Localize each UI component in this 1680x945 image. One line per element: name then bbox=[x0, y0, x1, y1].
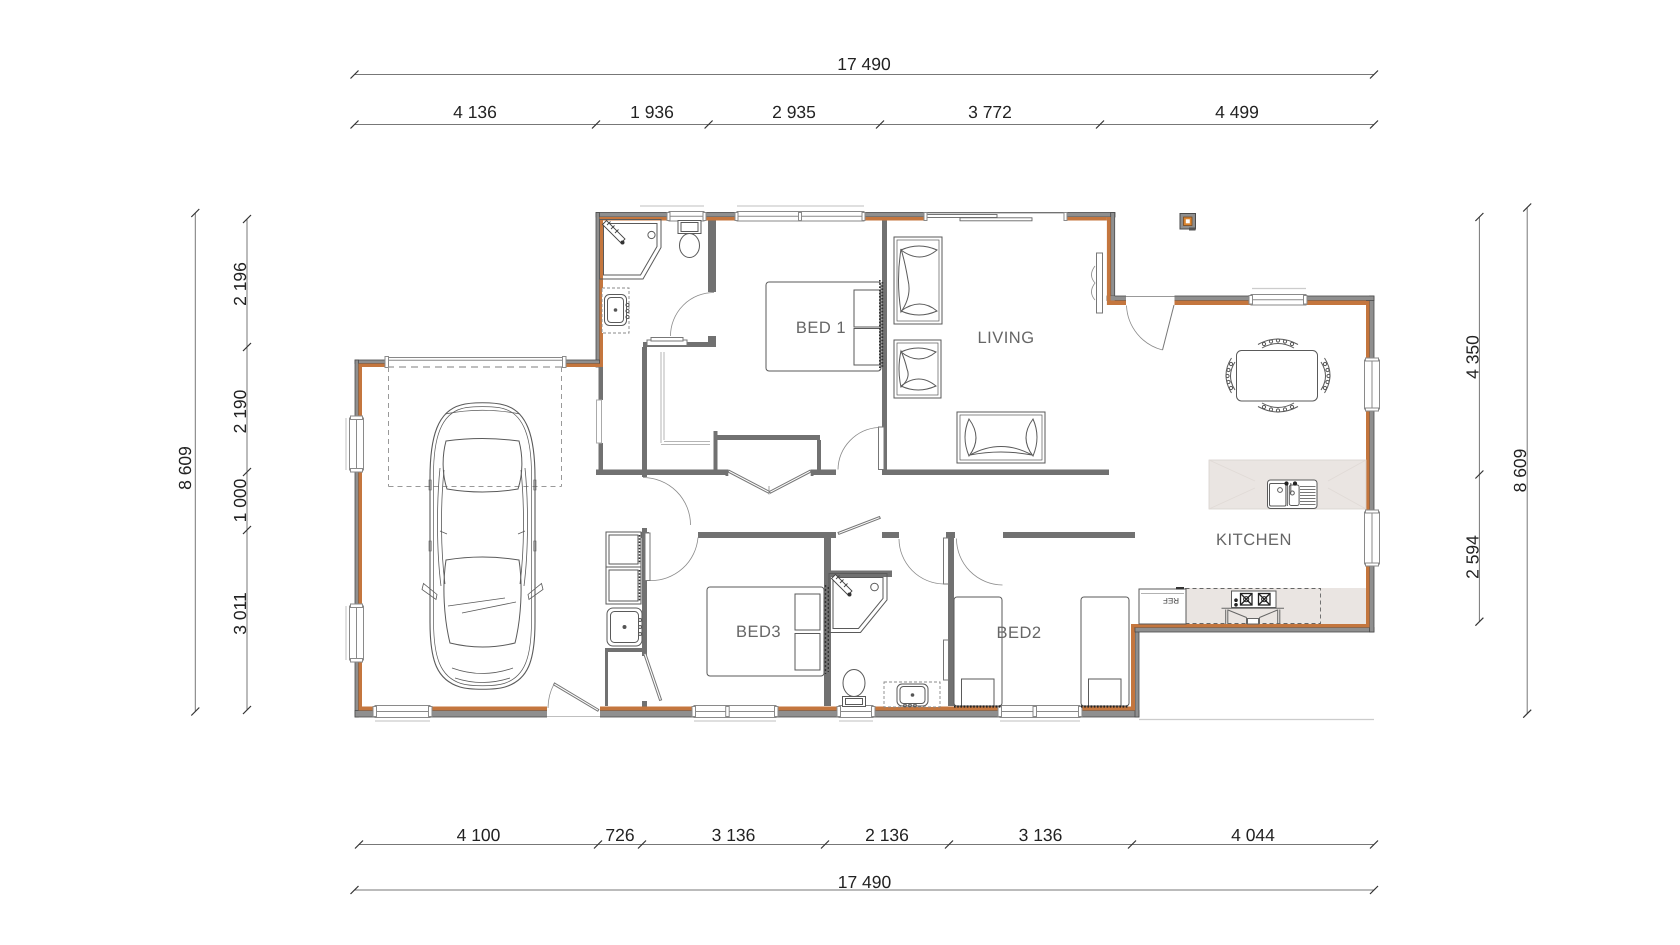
svg-text:3 772: 3 772 bbox=[968, 102, 1012, 122]
svg-text:1 000: 1 000 bbox=[230, 478, 250, 522]
svg-text:4 136: 4 136 bbox=[453, 102, 497, 122]
svg-text:BED3: BED3 bbox=[736, 623, 781, 641]
svg-text:4 100: 4 100 bbox=[457, 825, 501, 845]
svg-text:2 594: 2 594 bbox=[1463, 535, 1483, 579]
svg-text:3 136: 3 136 bbox=[1019, 825, 1063, 845]
svg-text:4 044: 4 044 bbox=[1231, 825, 1275, 845]
svg-text:3 011: 3 011 bbox=[230, 592, 250, 635]
svg-text:4 499: 4 499 bbox=[1215, 102, 1259, 122]
svg-text:2 196: 2 196 bbox=[230, 262, 250, 306]
svg-text:REF: REF bbox=[1163, 596, 1179, 605]
svg-text:17 490: 17 490 bbox=[837, 54, 891, 74]
svg-text:LIVING: LIVING bbox=[977, 329, 1034, 347]
svg-text:2 935: 2 935 bbox=[772, 102, 816, 122]
svg-text:BED 1: BED 1 bbox=[796, 319, 846, 337]
svg-text:2 136: 2 136 bbox=[865, 825, 909, 845]
svg-text:1 936: 1 936 bbox=[630, 102, 674, 122]
svg-text:2 190: 2 190 bbox=[230, 389, 250, 433]
svg-text:8 609: 8 609 bbox=[175, 446, 195, 490]
svg-text:KITCHEN: KITCHEN bbox=[1216, 531, 1292, 549]
svg-text:4 350: 4 350 bbox=[1463, 335, 1483, 379]
svg-text:3 136: 3 136 bbox=[712, 825, 756, 845]
svg-text:17 490: 17 490 bbox=[838, 872, 892, 892]
svg-text:BED2: BED2 bbox=[996, 624, 1041, 642]
svg-text:726: 726 bbox=[605, 825, 634, 845]
svg-text:8 609: 8 609 bbox=[1510, 449, 1530, 493]
